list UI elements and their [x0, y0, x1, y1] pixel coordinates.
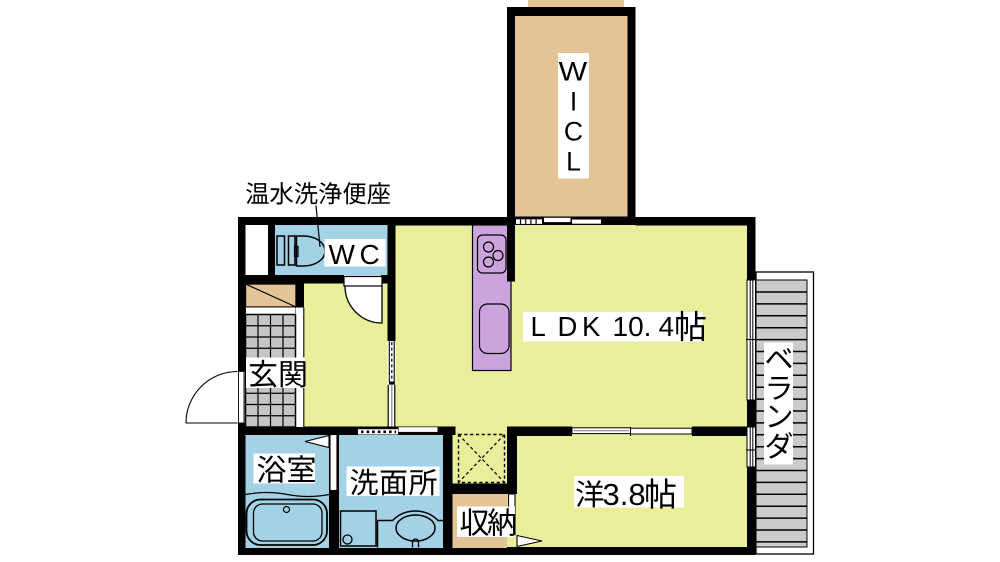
svg-text:C: C: [564, 117, 583, 147]
svg-text:C: C: [360, 239, 380, 270]
svg-text:L: L: [531, 311, 546, 342]
svg-text:L: L: [566, 147, 581, 177]
svg-text:4: 4: [659, 311, 675, 342]
svg-text:I: I: [570, 87, 577, 117]
svg-text:3.8: 3.8: [603, 477, 646, 512]
svg-text:D: D: [558, 311, 578, 342]
svg-text:K: K: [582, 311, 601, 342]
svg-text:W: W: [559, 57, 588, 87]
svg-text:10.: 10.: [613, 311, 652, 342]
svg-text:W: W: [329, 239, 356, 270]
